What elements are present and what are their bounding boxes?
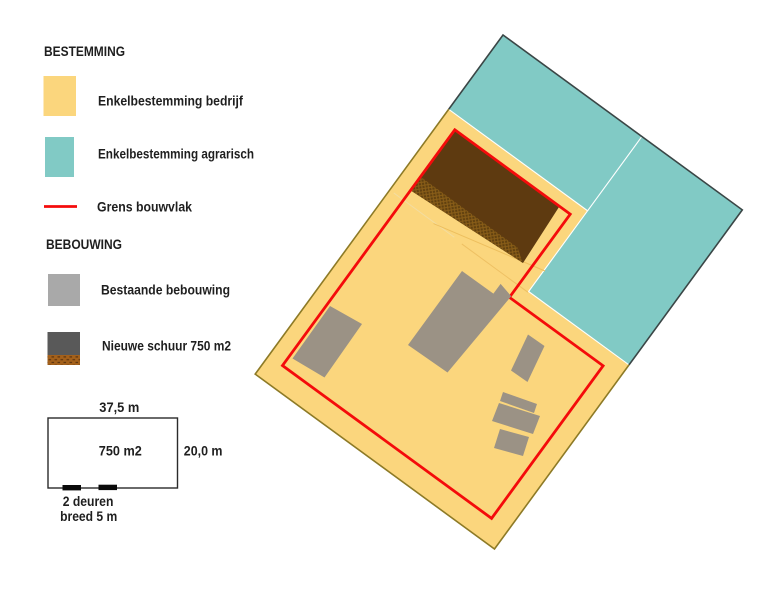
svg-text:Nieuwe schuur 750 m2: Nieuwe schuur 750 m2: [102, 339, 231, 354]
svg-text:BESTEMMING: BESTEMMING: [44, 44, 125, 59]
svg-text:750 m2: 750 m2: [99, 444, 142, 459]
svg-text:2 deuren: 2 deuren: [63, 494, 114, 509]
svg-text:Enkelbestemming agrarisch: Enkelbestemming agrarisch: [98, 147, 254, 162]
svg-text:Enkelbestemming bedrijf: Enkelbestemming bedrijf: [98, 94, 243, 109]
svg-text:20,0 m: 20,0 m: [184, 444, 223, 459]
svg-text:BEBOUWING: BEBOUWING: [46, 237, 122, 252]
svg-text:breed 5 m: breed 5 m: [60, 509, 117, 524]
svg-text:Bestaande bebouwing: Bestaande bebouwing: [101, 283, 230, 298]
svg-text:Grens bouwvlak: Grens bouwvlak: [97, 200, 192, 215]
svg-text:37,5 m: 37,5 m: [99, 400, 139, 415]
